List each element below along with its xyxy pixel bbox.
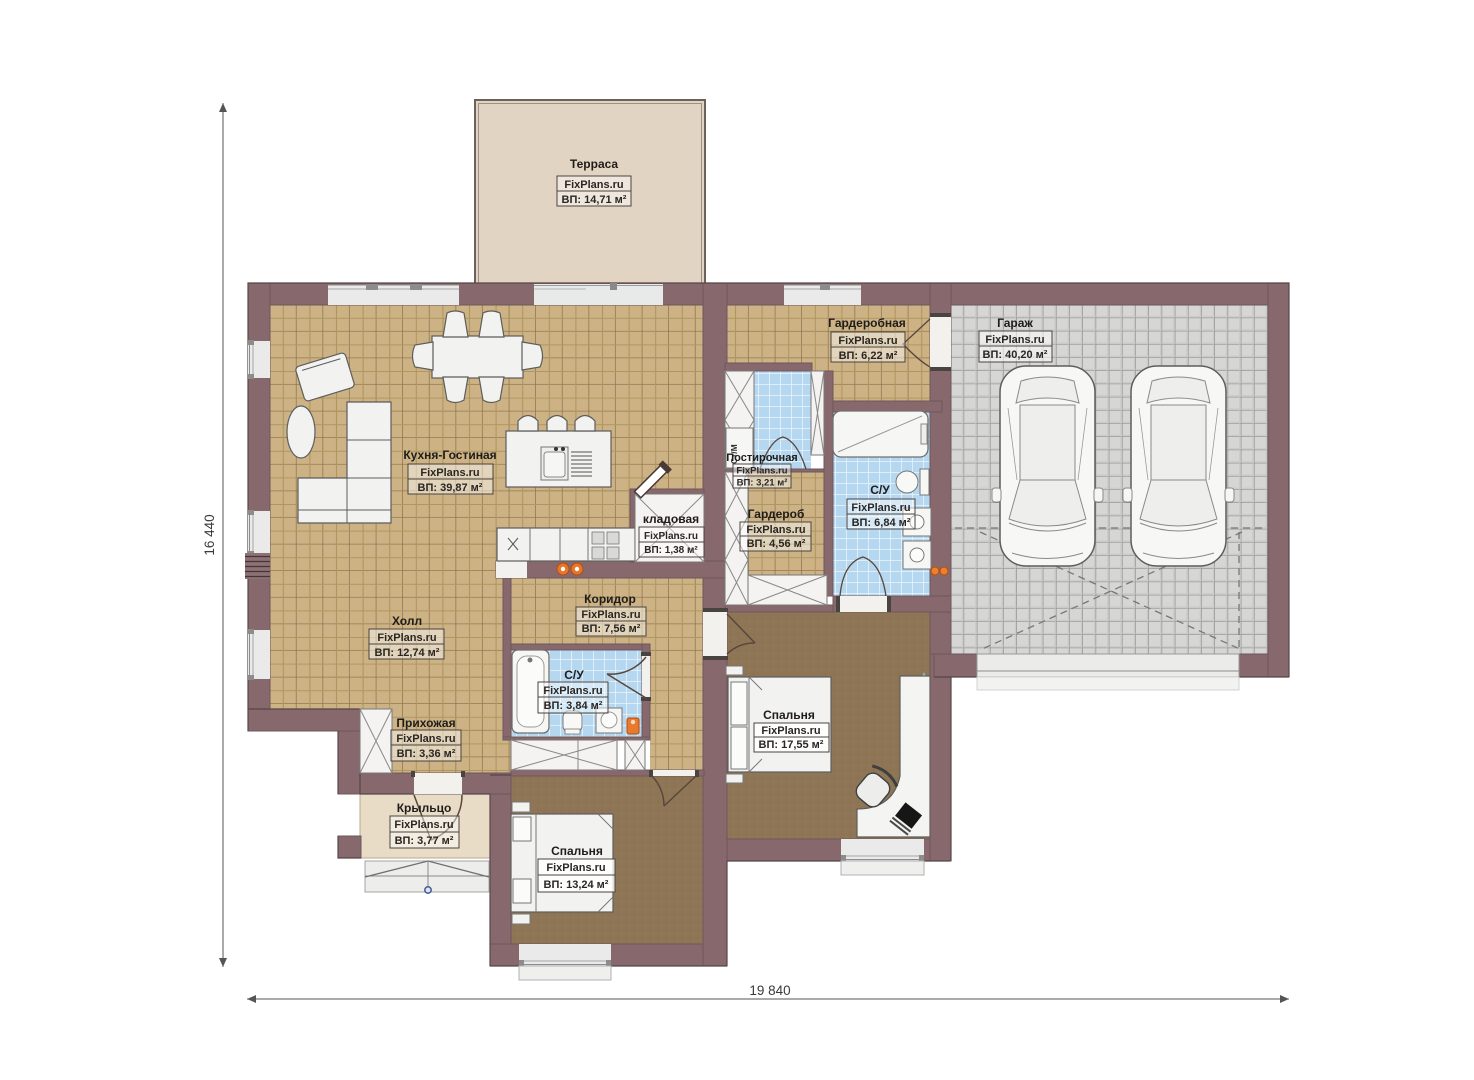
svg-text:ВП: 6,22 м²: ВП: 6,22 м² (839, 350, 898, 362)
svg-text:Кухня-Гостиная: Кухня-Гостиная (403, 448, 496, 462)
svg-text:FixPlans.ru: FixPlans.ru (761, 725, 820, 737)
svg-text:FixPlans.ru: FixPlans.ru (851, 502, 910, 514)
svg-text:ВП: 39,87 м²: ВП: 39,87 м² (418, 482, 483, 494)
svg-text:FixPlans.ru: FixPlans.ru (985, 334, 1044, 346)
svg-text:ВП: 4,56 м²: ВП: 4,56 м² (747, 538, 806, 550)
svg-text:ВП: 12,74 м²: ВП: 12,74 м² (375, 647, 440, 659)
svg-text:FixPlans.ru: FixPlans.ru (377, 632, 436, 644)
svg-text:ВП: 3,77 м²: ВП: 3,77 м² (395, 835, 454, 847)
svg-text:ВП: 6,84 м²: ВП: 6,84 м² (852, 517, 911, 529)
svg-text:ВП: 3,36 м²: ВП: 3,36 м² (397, 748, 456, 760)
svg-text:Спальня: Спальня (763, 708, 815, 722)
svg-text:ВП: 7,56 м²: ВП: 7,56 м² (582, 623, 641, 635)
svg-text:FixPlans.ru: FixPlans.ru (581, 609, 640, 621)
svg-text:FixPlans.ru: FixPlans.ru (543, 685, 602, 697)
svg-text:16 440: 16 440 (202, 514, 217, 555)
svg-text:ВП: 3,84 м²: ВП: 3,84 м² (544, 700, 603, 712)
svg-text:FixPlans.ru: FixPlans.ru (546, 862, 605, 874)
svg-text:Спальня: Спальня (551, 844, 603, 858)
svg-text:FixPlans.ru: FixPlans.ru (420, 467, 479, 479)
svg-text:FixPlans.ru: FixPlans.ru (838, 335, 897, 347)
svg-text:FixPlans.ru: FixPlans.ru (644, 531, 698, 542)
svg-text:ВП: 14,71 м²: ВП: 14,71 м² (562, 194, 627, 206)
svg-text:Гардероб: Гардероб (748, 507, 805, 521)
svg-text:19 840: 19 840 (749, 983, 790, 998)
svg-text:Постирочная: Постирочная (726, 452, 797, 464)
svg-text:FixPlans.ru: FixPlans.ru (736, 466, 787, 477)
svg-text:FixPlans.ru: FixPlans.ru (396, 733, 455, 745)
svg-text:Холл: Холл (392, 614, 422, 628)
svg-text:ВП: 13,24 м²: ВП: 13,24 м² (544, 879, 609, 891)
svg-text:кладовая: кладовая (643, 512, 699, 526)
svg-text:С/У: С/У (870, 483, 890, 497)
svg-text:Прихожая: Прихожая (396, 716, 455, 730)
svg-text:FixPlans.ru: FixPlans.ru (746, 524, 805, 536)
svg-text:ВП: 40,20 м²: ВП: 40,20 м² (983, 349, 1048, 361)
svg-text:ВП: 1,38 м²: ВП: 1,38 м² (644, 545, 698, 556)
svg-text:С/У: С/У (564, 668, 584, 682)
svg-text:ВП: 3,21 м²: ВП: 3,21 м² (737, 478, 788, 489)
svg-text:Гардеробная: Гардеробная (828, 316, 906, 330)
svg-text:Коридор: Коридор (584, 592, 636, 606)
svg-text:Гараж: Гараж (997, 316, 1033, 330)
svg-text:FixPlans.ru: FixPlans.ru (394, 819, 453, 831)
svg-text:Терраса: Терраса (570, 157, 619, 171)
svg-text:ВП: 17,55 м²: ВП: 17,55 м² (759, 739, 824, 751)
svg-text:FixPlans.ru: FixPlans.ru (564, 179, 623, 191)
svg-text:Крыльцо: Крыльцо (397, 801, 452, 815)
